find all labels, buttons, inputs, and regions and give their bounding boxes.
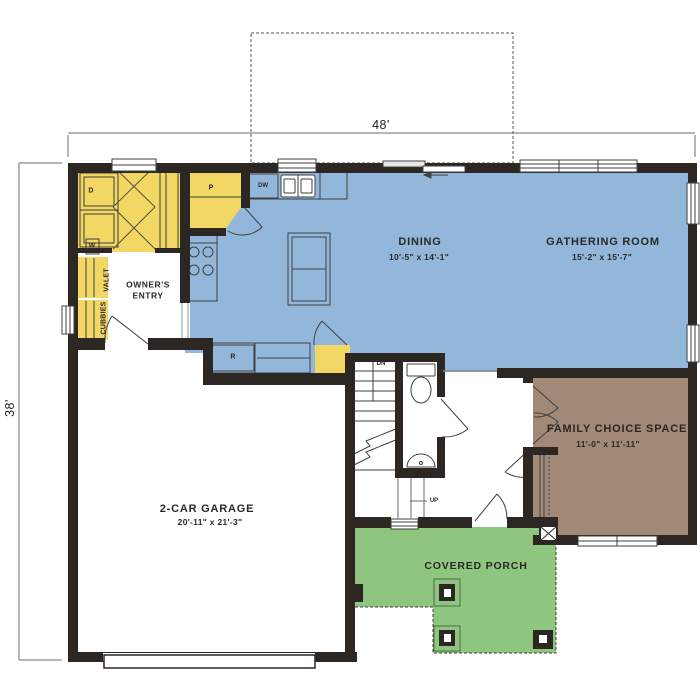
- cased-opening: [180, 303, 190, 338]
- powder-door-swing: [441, 399, 468, 437]
- kitchen-sink-icon: [281, 175, 315, 197]
- gathering-room-size-label: 15'-2" x 15'-7": [572, 252, 632, 262]
- wall-family-left-b: [523, 447, 533, 528]
- wall-powder-left: [395, 362, 403, 478]
- toilet-icon: [407, 364, 435, 403]
- chase-x-box: [540, 526, 557, 541]
- patio-dashed-outline: [251, 33, 513, 163]
- height-dimension-label: 38': [3, 399, 17, 417]
- floor-plan-drawing: [0, 0, 700, 700]
- dining-label: DINING: [398, 236, 441, 248]
- valet-label: VALET: [104, 268, 111, 291]
- family-choice-size-label: 11'-0" x 11'-11": [576, 439, 640, 449]
- garage-label: 2-CAR GARAGE: [160, 503, 255, 515]
- wall-powder-right-a: [437, 362, 445, 397]
- height-dimension-line: [19, 163, 62, 660]
- family-choice-label: FAMILY CHOICE SPACE: [547, 423, 687, 435]
- wall-kitchen-lower: [203, 373, 355, 385]
- wall-garage-east: [345, 353, 355, 662]
- wall-oe-bottom-a: [68, 338, 105, 350]
- stairs-down-label: DN: [377, 361, 386, 367]
- cubbies-label: CUBBIES: [101, 302, 108, 335]
- window-gathering-triple: [520, 160, 637, 172]
- window-laundry: [112, 159, 156, 171]
- refrigerator-label: R: [230, 354, 235, 361]
- garage-door: [103, 653, 315, 668]
- dishwasher-label: DW: [258, 183, 268, 189]
- window-kitchen: [278, 159, 316, 172]
- washer-label: W: [89, 243, 96, 250]
- front-door-swing: [475, 494, 507, 521]
- wall-family-left-a: [523, 368, 533, 383]
- dryer-label: D: [88, 188, 93, 195]
- width-dimension-line: [68, 133, 695, 157]
- window-left-cubbies: [62, 306, 74, 334]
- sink-icon: [407, 454, 435, 467]
- window-right-lower: [687, 325, 699, 362]
- covered-porch-label: COVERED PORCH: [424, 560, 527, 572]
- width-dimension-label: 48': [372, 118, 390, 132]
- dining-size-label: 10'-5" x 14'-1": [389, 252, 449, 262]
- porch-column-icon: [533, 630, 553, 649]
- porch-column-attached: [353, 584, 363, 602]
- wall-stair-top: [345, 353, 445, 362]
- wall-laundry-div-b: [155, 248, 185, 253]
- pantry-label: P: [209, 185, 214, 192]
- wall-closet-top: [523, 447, 558, 455]
- wall-foyer-bottom-a: [345, 517, 391, 528]
- stairs-up-label: UP: [430, 498, 438, 504]
- wall-foyer-bottom-b: [418, 517, 472, 528]
- garage-size-label: 20'-11" x 21'-3": [178, 517, 243, 527]
- wall-pantry: [241, 163, 250, 208]
- gathering-lower-fill: [533, 353, 695, 368]
- family-choice-fill: [533, 378, 688, 535]
- wall-left: [68, 163, 78, 662]
- gathering-room-label: GATHERING ROOM: [546, 236, 660, 248]
- window-right-upper: [687, 183, 699, 224]
- wall-pantry-bottom: [183, 228, 226, 236]
- window-family-bottom: [578, 536, 657, 546]
- floor-plan: 48' 38' DINING 10'-5" x 14'-1" GATHERING…: [0, 0, 700, 700]
- kitchen-closet-fill: [315, 345, 350, 373]
- window-foyer-bottom: [391, 519, 418, 529]
- owners-entry-label: OWNER'S ENTRY: [112, 279, 184, 300]
- stairs-up-run: [398, 478, 427, 518]
- wall-powder-bottom: [395, 468, 445, 478]
- wall-jog: [203, 338, 213, 385]
- garage-entry-door-swing: [105, 316, 148, 344]
